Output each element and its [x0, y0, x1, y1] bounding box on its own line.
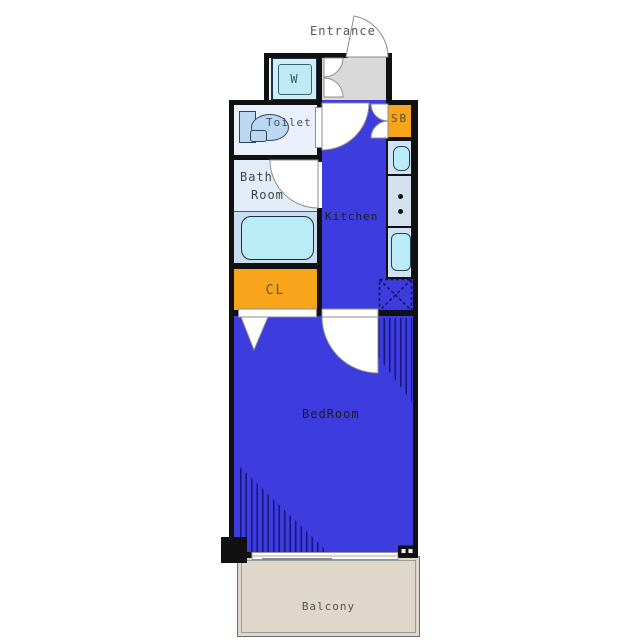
- bedroom-door-swing-icon: [322, 317, 378, 373]
- shoebox-label: SB: [386, 113, 413, 124]
- closet-door-fold-icon: [241, 317, 268, 350]
- bath-room-label-line1: Bath: [240, 171, 273, 183]
- closet-door-icon: [239, 309, 317, 317]
- shutter-box-icon: [402, 549, 406, 553]
- floorplan-canvas: Balcony: [0, 0, 640, 640]
- bedroom-door-leaf-icon: [322, 309, 378, 317]
- washer-door-swing-icon: [324, 58, 343, 77]
- entrance-label: Entrance: [310, 25, 376, 37]
- door-swing-overlay: [0, 0, 640, 640]
- washer-door-swing-icon: [324, 78, 343, 97]
- washer-label: W: [271, 73, 318, 85]
- closet-label: CL: [234, 284, 317, 297]
- kitchen-door-swing-icon: [322, 103, 369, 150]
- bedroom-label: BedRoom: [302, 408, 360, 420]
- kitchen-label: Kitchen: [325, 211, 378, 222]
- bath-room-label-line2: Room: [251, 189, 284, 201]
- toilet-label: Toilet: [266, 117, 312, 128]
- pillar: [221, 537, 247, 563]
- shutter-box-icon: [409, 549, 413, 553]
- toilet-door-icon: [316, 108, 323, 148]
